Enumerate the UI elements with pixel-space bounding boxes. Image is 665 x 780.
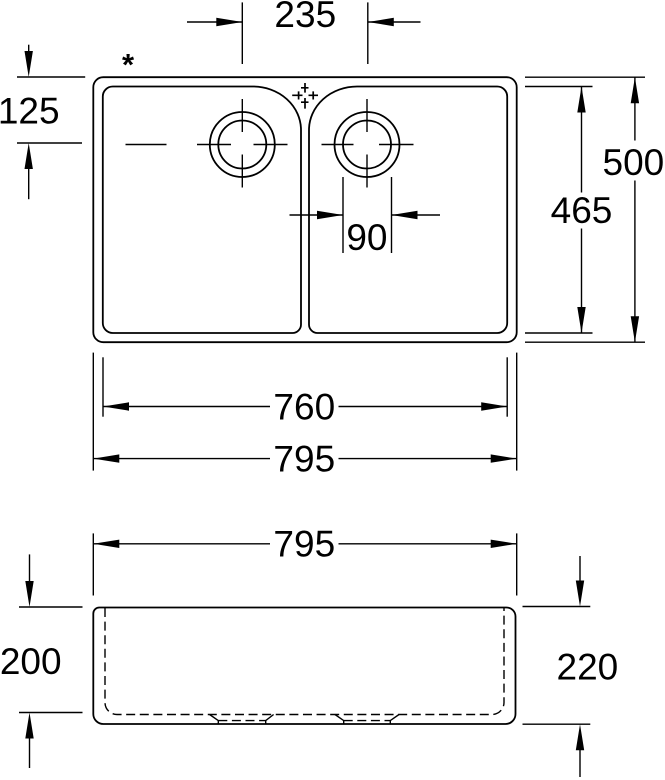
svg-text:200: 200	[0, 641, 62, 682]
svg-text:220: 220	[557, 646, 619, 687]
svg-text:465: 465	[551, 190, 613, 231]
svg-text:500: 500	[603, 142, 665, 183]
svg-text:90: 90	[346, 217, 387, 258]
svg-text:795: 795	[273, 439, 335, 480]
svg-text:125: 125	[0, 91, 60, 132]
svg-text:*: *	[122, 47, 135, 82]
svg-text:795: 795	[273, 524, 335, 565]
svg-text:235: 235	[274, 0, 336, 35]
svg-text:760: 760	[273, 386, 335, 427]
